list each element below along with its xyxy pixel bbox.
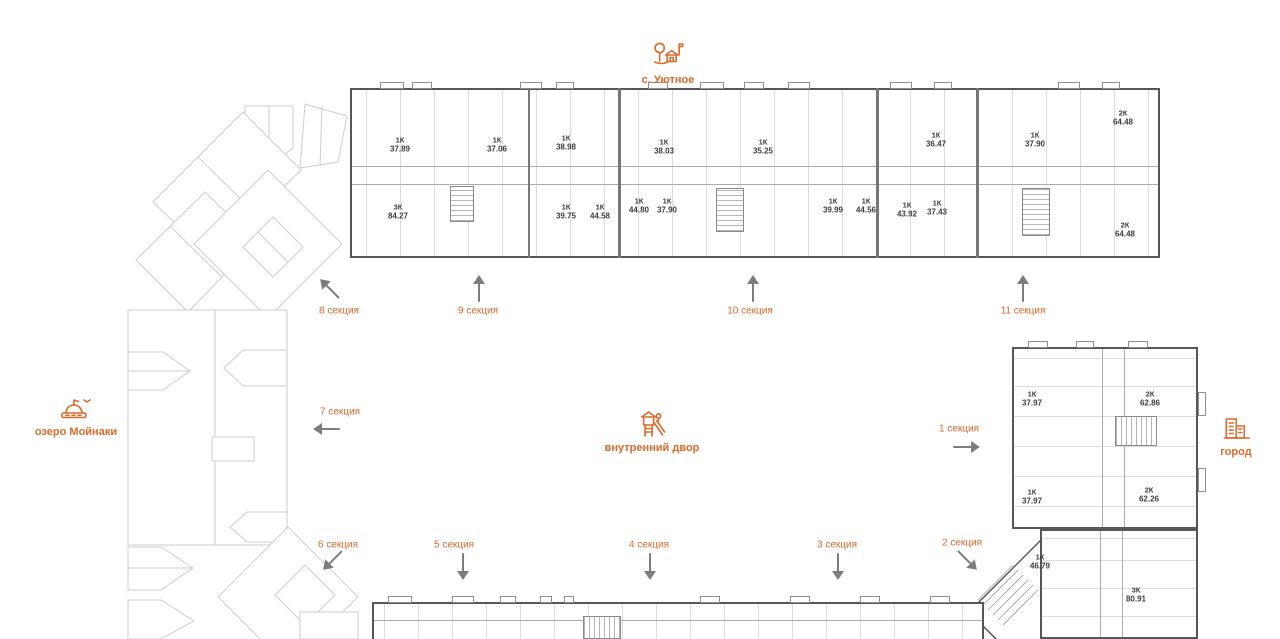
apartment-area: 44.56 [856, 206, 876, 216]
apartment-type: 2К [1139, 486, 1159, 495]
balcony [744, 82, 764, 89]
building-sections-3-5 [372, 602, 984, 639]
section-label[interactable]: 5 секция [434, 540, 474, 551]
balcony [788, 82, 810, 89]
section-label[interactable]: 6 секция [318, 540, 358, 551]
balcony [388, 596, 412, 603]
apartment-area: 37.43 [927, 208, 947, 218]
landmark-label: город [1220, 446, 1251, 458]
apartment-type: 1К [556, 203, 576, 212]
stairwell [583, 616, 621, 639]
apartment-area: 43.92 [897, 210, 917, 220]
apartment-type: 1К [629, 197, 649, 206]
apartment-label[interactable]: 2К62.86 [1140, 390, 1160, 409]
section-label[interactable]: 3 секция [817, 540, 857, 551]
apartment-type: 1К [927, 199, 947, 208]
apartment-type: 3К [388, 203, 408, 212]
balcony [1028, 341, 1048, 348]
arrow-shaft [478, 283, 481, 302]
arrow-shaft [325, 284, 340, 299]
apartment-label[interactable]: 1К46.79 [1030, 553, 1050, 572]
beach-icon [56, 394, 96, 424]
arrow-shaft [462, 553, 465, 572]
balcony [452, 596, 474, 603]
stairwell [1022, 188, 1050, 236]
arrow-head [645, 571, 657, 580]
section-label[interactable]: 9 секция [458, 306, 498, 317]
section-label[interactable]: 2 секция [942, 538, 982, 549]
apartment-area: 64.48 [1113, 118, 1133, 128]
section-arrow[interactable] [1009, 275, 1037, 303]
arrow-head [971, 441, 980, 453]
section-label[interactable]: 11 секция [1001, 306, 1046, 317]
apartment-area: 62.86 [1140, 399, 1160, 409]
section-label[interactable]: 4 секция [629, 540, 669, 551]
apartment-label[interactable]: 1К39.99 [823, 197, 843, 216]
apartment-type: 1К [823, 197, 843, 206]
arrow-shaft [953, 446, 972, 449]
apartment-type: 1К [1022, 488, 1042, 497]
landmark-label: внутренний двор [605, 442, 700, 454]
landmark-city: город [1220, 414, 1251, 458]
apartment-label[interactable]: 1К37.06 [487, 136, 507, 155]
arrow-head [747, 275, 759, 284]
section-arrow[interactable] [636, 552, 664, 580]
arrow-shaft [321, 428, 340, 431]
apartment-type: 1К [590, 203, 610, 212]
apartment-area: 37.97 [1022, 497, 1042, 507]
apartment-label[interactable]: 2К64.48 [1115, 221, 1135, 240]
section-divider-wall [618, 88, 621, 258]
landmark-label: с. Уютное [642, 74, 695, 86]
city-buildings-icon [1221, 414, 1251, 444]
site-floor-plan: с. Уютное озеро Мойнаки внутренний двор … [0, 0, 1280, 639]
apartment-label[interactable]: 2К62.26 [1139, 486, 1159, 505]
section-divider-wall [876, 88, 879, 258]
apartment-type: 1К [1025, 131, 1045, 140]
balcony [1102, 82, 1120, 89]
apartment-type: 1К [1022, 390, 1042, 399]
apartment-type: 2К [1140, 390, 1160, 399]
apartment-label[interactable]: 1К44.58 [590, 203, 610, 222]
apartment-type: 1К [1030, 553, 1050, 562]
arrow-head [833, 571, 845, 580]
balcony [1198, 392, 1206, 416]
apartment-area: 37.97 [1022, 399, 1042, 409]
apartment-label[interactable]: 1К44.56 [856, 197, 876, 216]
section-divider-wall [528, 88, 530, 258]
apartment-type: 2К [1113, 109, 1133, 118]
apartment-type: 1К [856, 197, 876, 206]
balcony [1198, 468, 1206, 492]
balcony [860, 596, 880, 603]
apartment-area: 80.91 [1126, 595, 1146, 605]
apartment-type: 3К [1126, 586, 1146, 595]
apartment-label[interactable]: 1К37.90 [1025, 131, 1045, 150]
apartment-area: 38.03 [654, 147, 674, 157]
section-arrow[interactable] [739, 275, 767, 303]
balcony [500, 596, 516, 603]
apartment-area: 35.25 [753, 147, 773, 157]
apartment-type: 2К [1115, 221, 1135, 230]
apartment-area: 36.47 [926, 140, 946, 150]
apartment-label[interactable]: 1К38.03 [654, 138, 674, 157]
section-divider-wall [976, 88, 979, 258]
arrow-shaft [837, 553, 840, 572]
apartment-label[interactable]: 1К35.25 [753, 138, 773, 157]
apartment-label[interactable]: 3К80.91 [1126, 586, 1146, 605]
apartment-type: 1К [926, 131, 946, 140]
balcony [412, 82, 432, 89]
apartment-type: 1К [897, 201, 917, 210]
apartment-label[interactable]: 2К64.48 [1113, 109, 1133, 128]
apartment-type: 1К [654, 138, 674, 147]
apartment-label[interactable]: 1К43.92 [897, 201, 917, 220]
apartment-area: 37.90 [657, 206, 677, 216]
balcony [556, 82, 574, 89]
apartment-area: 37.89 [390, 145, 410, 155]
landmark-lake: озеро Мойнаки [35, 394, 117, 438]
apartment-area: 62.26 [1139, 495, 1159, 505]
section-label[interactable]: 10 секция [727, 306, 773, 317]
balcony [934, 82, 952, 89]
balcony [540, 596, 552, 603]
stairwell [450, 186, 474, 222]
arrow-head [313, 424, 322, 436]
apartment-label[interactable]: 1К37.97 [1022, 390, 1042, 409]
apartment-type: 1К [556, 134, 576, 143]
apartment-area: 37.06 [487, 145, 507, 155]
apartment-type: 1К [753, 138, 773, 147]
landmark-label: озеро Мойнаки [35, 426, 117, 438]
balcony [890, 82, 912, 89]
balcony [930, 596, 950, 603]
stairwell [716, 188, 744, 232]
stairwell [1115, 416, 1157, 446]
balcony [1128, 341, 1148, 348]
arrow-head [1017, 275, 1029, 284]
apartment-label[interactable]: 1К37.90 [657, 197, 677, 216]
apartment-type: 1К [657, 197, 677, 206]
arrow-shaft [1022, 283, 1025, 302]
building-section-2 [1040, 529, 1198, 639]
apartment-type: 1К [487, 136, 507, 145]
balcony [1058, 82, 1080, 89]
apartment-area: 39.75 [556, 212, 576, 222]
section-label[interactable]: 7 секция [320, 407, 360, 418]
apartment-label[interactable]: 3К84.27 [388, 203, 408, 222]
apartment-area: 44.80 [629, 206, 649, 216]
section-label[interactable]: 8 секция [319, 306, 359, 317]
section-arrow[interactable] [465, 275, 493, 303]
apartment-area: 38.98 [556, 143, 576, 153]
arrow-head [458, 571, 470, 580]
apartment-area: 39.99 [823, 206, 843, 216]
balcony [790, 596, 810, 603]
landmark-courtyard: внутренний двор [605, 408, 700, 454]
apartment-label[interactable]: 1К38.98 [556, 134, 576, 153]
arrow-head [473, 275, 485, 284]
playground-icon [635, 408, 669, 440]
apartment-label[interactable]: 1К37.89 [390, 136, 410, 155]
balcony [380, 82, 404, 89]
apartment-label[interactable]: 1К44.80 [629, 197, 649, 216]
section-arrow[interactable] [449, 552, 477, 580]
apartment-area: 84.27 [388, 212, 408, 222]
balcony [700, 82, 724, 89]
section-arrow[interactable] [313, 415, 341, 443]
apartment-type: 1К [390, 136, 410, 145]
arrow-shaft [752, 283, 755, 302]
balcony [700, 596, 720, 603]
section-label[interactable]: 1 секция [939, 424, 979, 435]
landmark-village: с. Уютное [642, 40, 695, 86]
apartment-area: 46.79 [1030, 562, 1050, 572]
arrow-shaft [649, 553, 652, 572]
balcony [1076, 341, 1094, 348]
apartment-label[interactable]: 1К36.47 [926, 131, 946, 150]
apartment-area: 64.48 [1115, 230, 1135, 240]
apartment-area: 44.58 [590, 212, 610, 222]
balcony [520, 82, 542, 89]
house-tree-icon [651, 40, 685, 72]
balcony [564, 596, 574, 603]
apartment-label[interactable]: 1К39.75 [556, 203, 576, 222]
apartment-label[interactable]: 1К37.97 [1022, 488, 1042, 507]
apartment-area: 37.90 [1025, 140, 1045, 150]
section-arrow[interactable] [824, 552, 852, 580]
section-arrow[interactable] [952, 433, 980, 461]
arrow-shaft [328, 550, 343, 565]
apartment-label[interactable]: 1К37.43 [927, 199, 947, 218]
